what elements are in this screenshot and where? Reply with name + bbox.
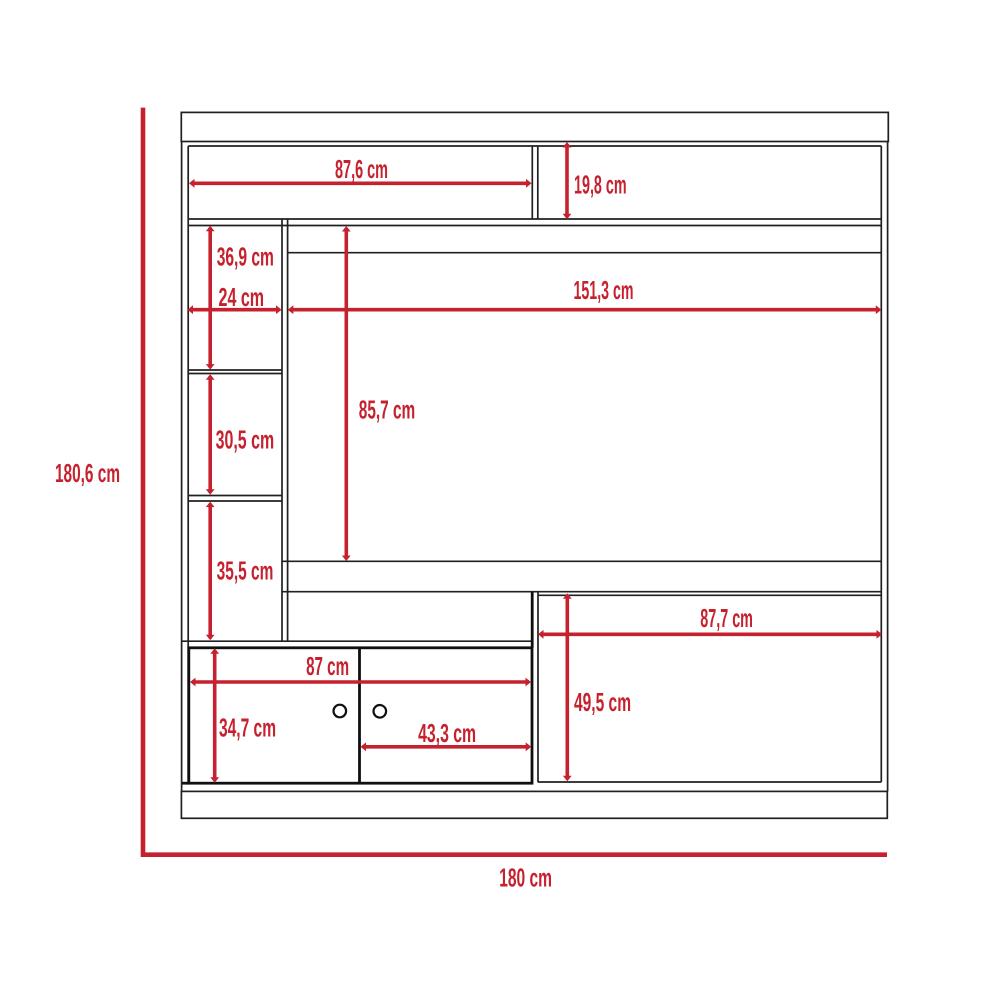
svg-text:151,3 cm: 151,3 cm [574, 275, 634, 305]
svg-text:19,8 cm: 19,8 cm [574, 170, 627, 200]
svg-text:43,3 cm: 43,3 cm [418, 718, 476, 748]
svg-text:87 cm: 87 cm [306, 651, 349, 681]
svg-text:49,5 cm: 49,5 cm [574, 687, 631, 717]
svg-text:24 cm: 24 cm [219, 282, 265, 312]
svg-text:85,7 cm: 85,7 cm [359, 394, 415, 424]
svg-text:87,6 cm: 87,6 cm [335, 154, 388, 184]
svg-text:36,9 cm: 36,9 cm [217, 242, 274, 272]
svg-text:87,7 cm: 87,7 cm [700, 603, 753, 633]
svg-text:30,5 cm: 30,5 cm [216, 424, 275, 454]
svg-text:180,6 cm: 180,6 cm [55, 458, 120, 488]
svg-text:34,7 cm: 34,7 cm [219, 713, 276, 743]
svg-text:180 cm: 180 cm [499, 862, 552, 892]
svg-text:35,5 cm: 35,5 cm [217, 556, 274, 586]
